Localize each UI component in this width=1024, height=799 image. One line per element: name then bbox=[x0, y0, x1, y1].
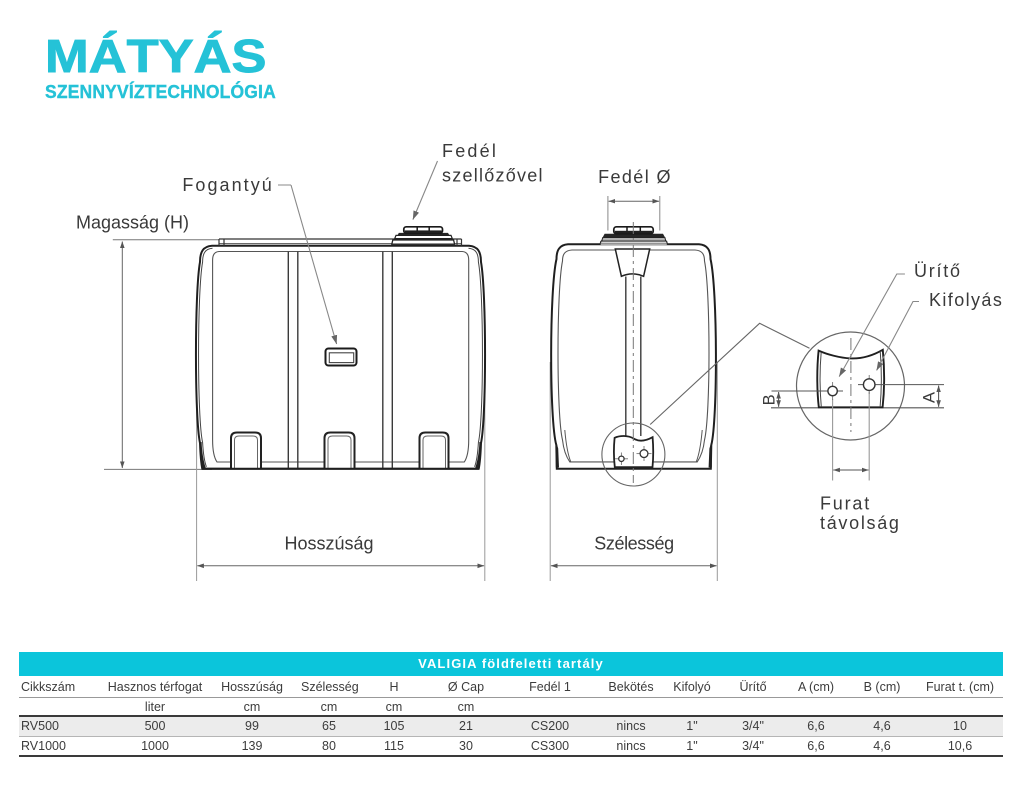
svg-text:Fedél: Fedél bbox=[442, 141, 498, 161]
svg-text:Kifolyás: Kifolyás bbox=[929, 290, 1003, 310]
svg-text:Fogantyú: Fogantyú bbox=[182, 175, 273, 195]
svg-text:Furat: Furat bbox=[820, 494, 871, 514]
svg-text:szellőzővel: szellőzővel bbox=[442, 166, 544, 186]
svg-text:Fedél Ø: Fedél Ø bbox=[598, 167, 672, 187]
svg-text:távolság: távolság bbox=[820, 513, 901, 533]
svg-text:Hosszúság: Hosszúság bbox=[284, 533, 373, 553]
svg-text:B: B bbox=[760, 394, 778, 405]
svg-text:Ürítő: Ürítő bbox=[914, 261, 962, 281]
svg-text:A: A bbox=[920, 392, 938, 403]
svg-text:Magasság (H): Magasság (H) bbox=[76, 213, 189, 233]
svg-text:Szélesség: Szélesség bbox=[594, 533, 673, 553]
